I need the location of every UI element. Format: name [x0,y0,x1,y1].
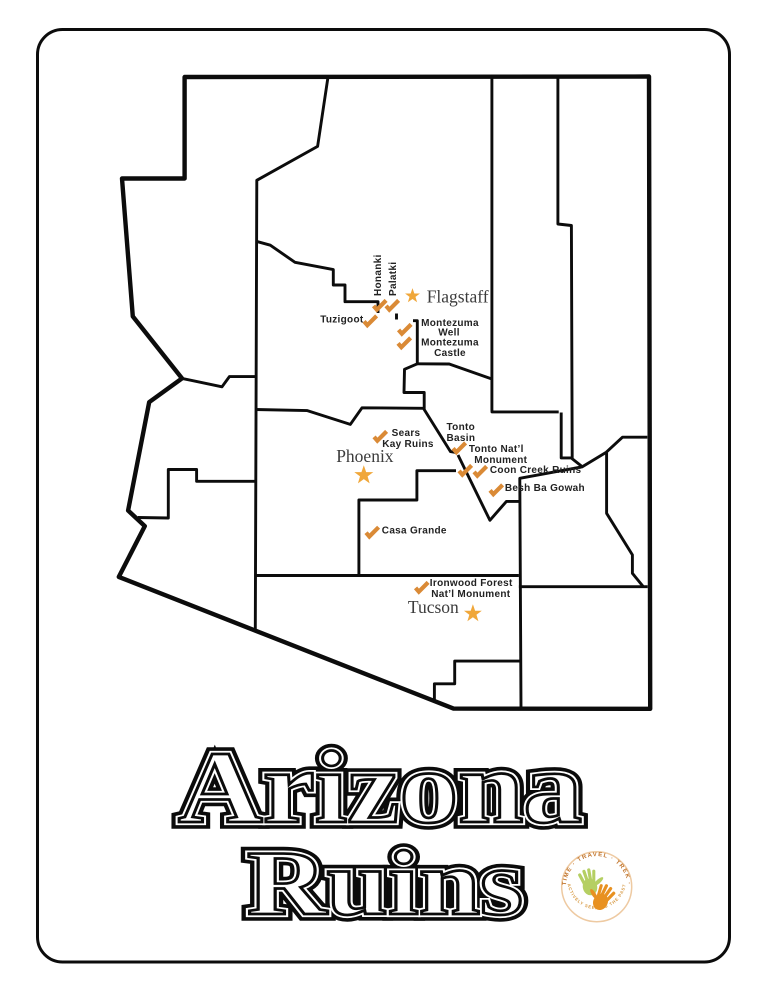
svg-text:Tuzigoot: Tuzigoot [320,315,364,326]
svg-text:Ruins: Ruins [247,832,523,934]
svg-text:Ironwood Forest: Ironwood Forest [430,578,513,589]
svg-text:Arizona: Arizona [178,731,582,845]
svg-text:Palatki: Palatki [388,262,399,296]
svg-text:Besh Ba Gowah: Besh Ba Gowah [505,483,585,494]
svg-text:Flagstaff: Flagstaff [427,286,489,306]
svg-text:Tonto Nat’l: Tonto Nat’l [469,444,524,455]
svg-text:Honanki: Honanki [373,254,384,296]
svg-text:Basin: Basin [447,433,476,444]
svg-text:Phoenix: Phoenix [336,446,394,466]
svg-text:Tonto: Tonto [447,422,476,433]
svg-text:Casa Grande: Casa Grande [382,526,447,537]
svg-text:Coon Creek Ruins: Coon Creek Ruins [490,465,582,476]
svg-text:Sears: Sears [392,428,421,439]
svg-text:Tucson: Tucson [408,597,459,617]
svg-text:Montezuma: Montezuma [421,338,479,349]
svg-text:Castle: Castle [434,348,466,359]
